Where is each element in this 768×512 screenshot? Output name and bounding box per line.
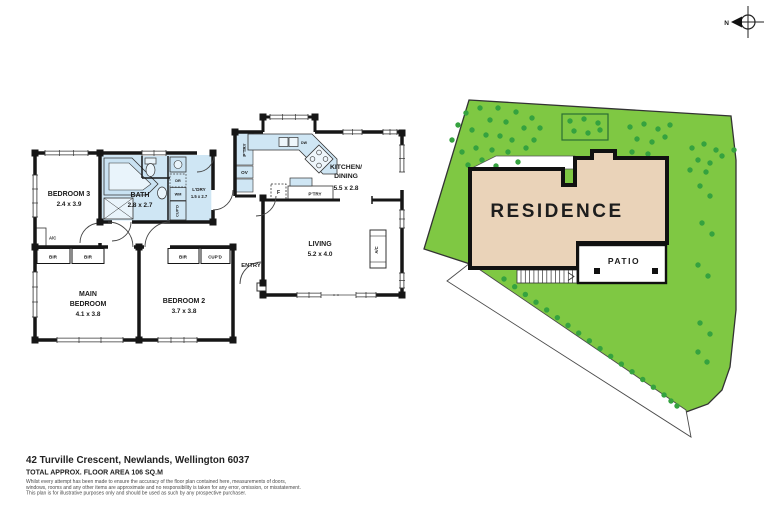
floor-area: TOTAL APPROX. FLOOR AREA 106 SQ.M [26,470,163,477]
bedroom2-dims: 3.7 x 3.8 [172,308,197,315]
sink [279,138,288,147]
compass-icon: N [724,6,764,38]
bir-label: BIR [84,255,93,260]
dr-label: DR [175,179,181,183]
ldry-dims: 1.5 x 2.7 [191,194,208,199]
bath-label: BATH [131,192,150,199]
kitchen-dims: 5.5 x 2.8 [334,185,359,192]
pantry-counter-top [290,178,312,186]
cupd-label: CUP'D [208,255,222,260]
dw-label: DW [301,141,308,145]
ac-unit-label: A/C [374,246,379,253]
bir-label: BIR [179,255,188,260]
address: 42 Turville Crescent, Newlands, Wellingt… [26,455,250,466]
main-bedroom-label2: BEDROOM [70,301,107,308]
wm-label: WM [175,193,182,197]
wall-piers [32,114,406,344]
kitchen-label1: KITCHEN/ [330,164,362,171]
footer: 42 Turville Crescent, Newlands, Wellingt… [26,455,301,497]
windows [32,114,405,343]
living-label: LIVING [308,241,332,248]
ov-label: OV [241,170,249,175]
patio-post [594,268,600,274]
ptry-label: P'TRY [242,143,247,156]
north-label: N [724,20,729,27]
floor-plan: BEDROOM 3 2.4 x 3.9 BATH 2.8 x 2.7 L'DRY… [32,114,406,344]
laundry-cupd-label: CUP'D [176,205,180,217]
bir-label: BIR [49,255,58,260]
floorplan-page: RESIDENCE PATIO N [0,0,768,512]
patio-post [652,268,658,274]
residence-label: RESIDENCE [490,201,623,222]
bedroom2-label: BEDROOM 2 [163,298,206,305]
basin [158,187,167,199]
main-bedroom-label1: MAIN [79,291,97,298]
bedroom3-label: BEDROOM 3 [48,191,91,198]
entry-label: ENTRY [241,263,261,269]
bedroom3-dims: 2.4 x 3.9 [57,201,82,208]
ac-box [36,228,46,246]
ac-label: A/C [49,236,56,241]
living-dims: 5.2 x 4.0 [308,251,333,258]
toilet [146,164,155,177]
sink [289,138,298,147]
ptry-counter-label: P'TRY [308,192,321,197]
kitchen-label2: DINING [334,173,358,180]
toilet-tank [145,158,156,164]
main-bedroom-dims: 4.1 x 3.8 [76,311,101,318]
bath-dims: 2.8 x 2.7 [128,202,153,209]
ldry-label: L'DRY [192,187,205,192]
fridge-label: F [277,190,280,196]
patio-label: PATIO [608,256,640,266]
disclaimer-line3: This plan is for illustrative purposes o… [26,491,246,497]
site-plan: RESIDENCE PATIO [424,100,737,437]
pantry-corner [236,179,253,192]
steps [517,270,577,283]
